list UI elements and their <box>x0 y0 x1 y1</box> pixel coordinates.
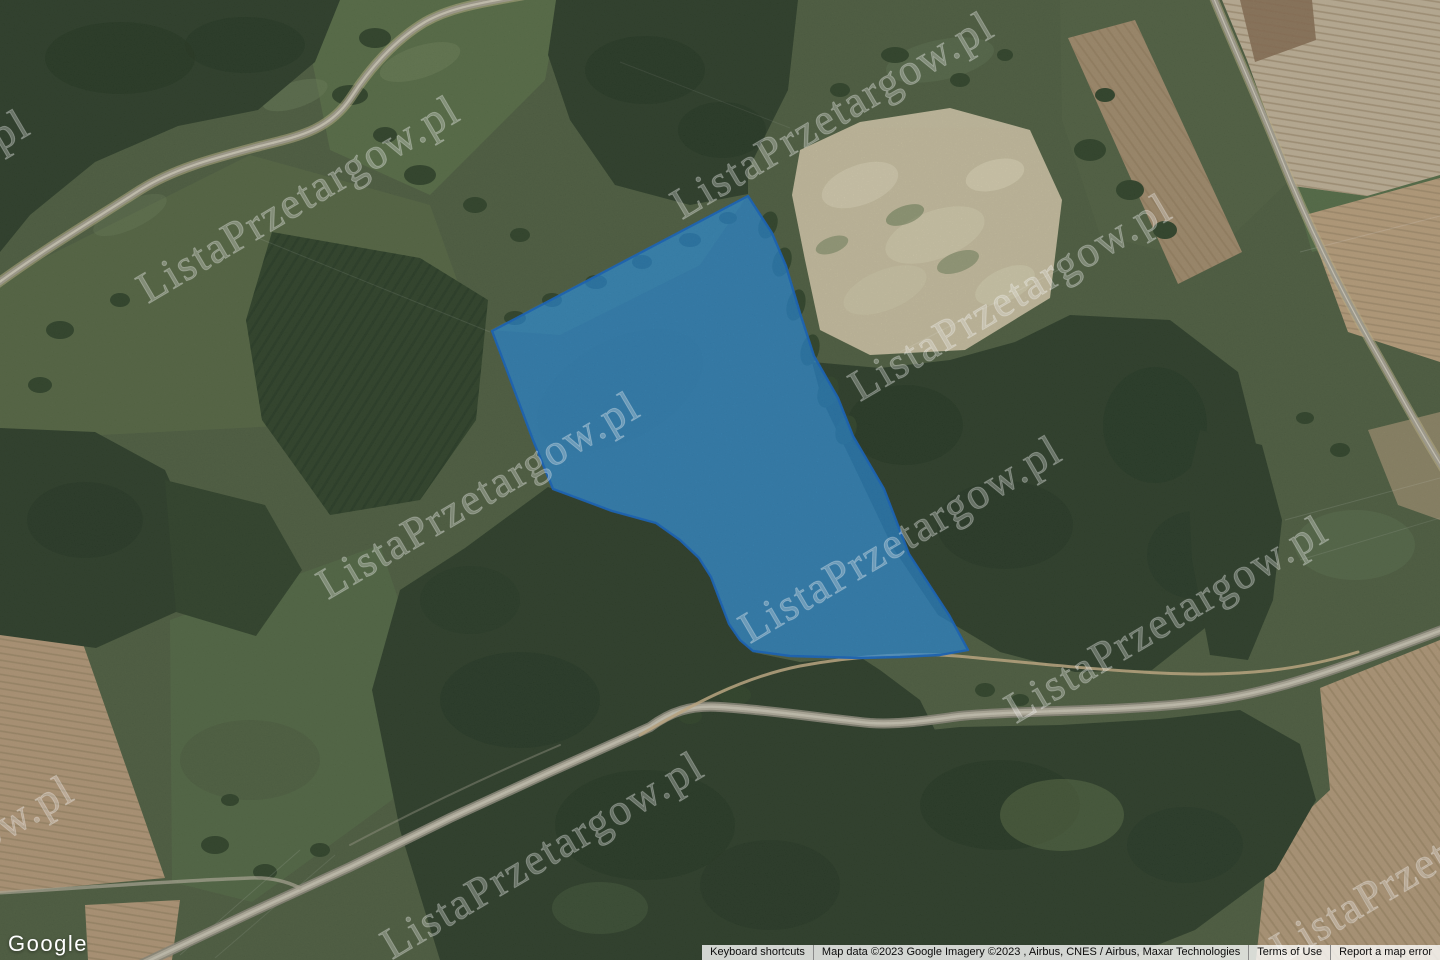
keyboard-shortcuts-button[interactable]: Keyboard shortcuts <box>702 945 813 960</box>
map-data-attribution: Map data ©2023 Google Imagery ©2023 , Ai… <box>813 945 1248 960</box>
google-logo[interactable]: Google <box>8 931 88 957</box>
attribution-bar: Keyboard shortcuts Map data ©2023 Google… <box>702 945 1440 960</box>
satellite-map[interactable]: ListaPrzetargow.pl ListaPrzetargow.pl Li… <box>0 0 1440 960</box>
grain-overlay <box>0 0 1440 960</box>
map-viewport[interactable]: ListaPrzetargow.pl ListaPrzetargow.pl Li… <box>0 0 1440 960</box>
report-map-error-link[interactable]: Report a map error <box>1330 945 1440 960</box>
terms-of-use-link[interactable]: Terms of Use <box>1248 945 1330 960</box>
